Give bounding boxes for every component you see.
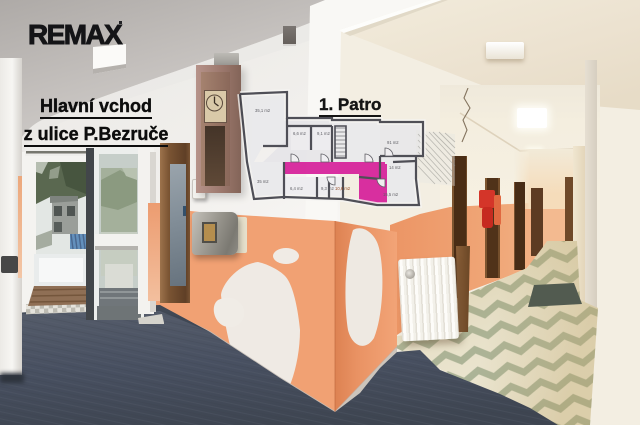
svg-text:35 m2: 35 m2 [257,179,269,184]
svg-text:6,6 m2: 6,6 m2 [293,131,306,136]
svg-text:91 m2: 91 m2 [387,140,399,145]
svg-text:9,3 m2: 9,3 m2 [321,186,334,191]
svg-text:6,4 m2: 6,4 m2 [290,186,303,191]
svg-text:14 m2: 14 m2 [389,165,401,170]
svg-text:9,1 m2: 9,1 m2 [317,131,330,136]
svg-text:15,5 m2: 15,5 m2 [383,192,399,197]
svg-text:10,6 m2: 10,6 m2 [335,186,351,191]
svg-text:35,1 m2: 35,1 m2 [255,108,271,113]
